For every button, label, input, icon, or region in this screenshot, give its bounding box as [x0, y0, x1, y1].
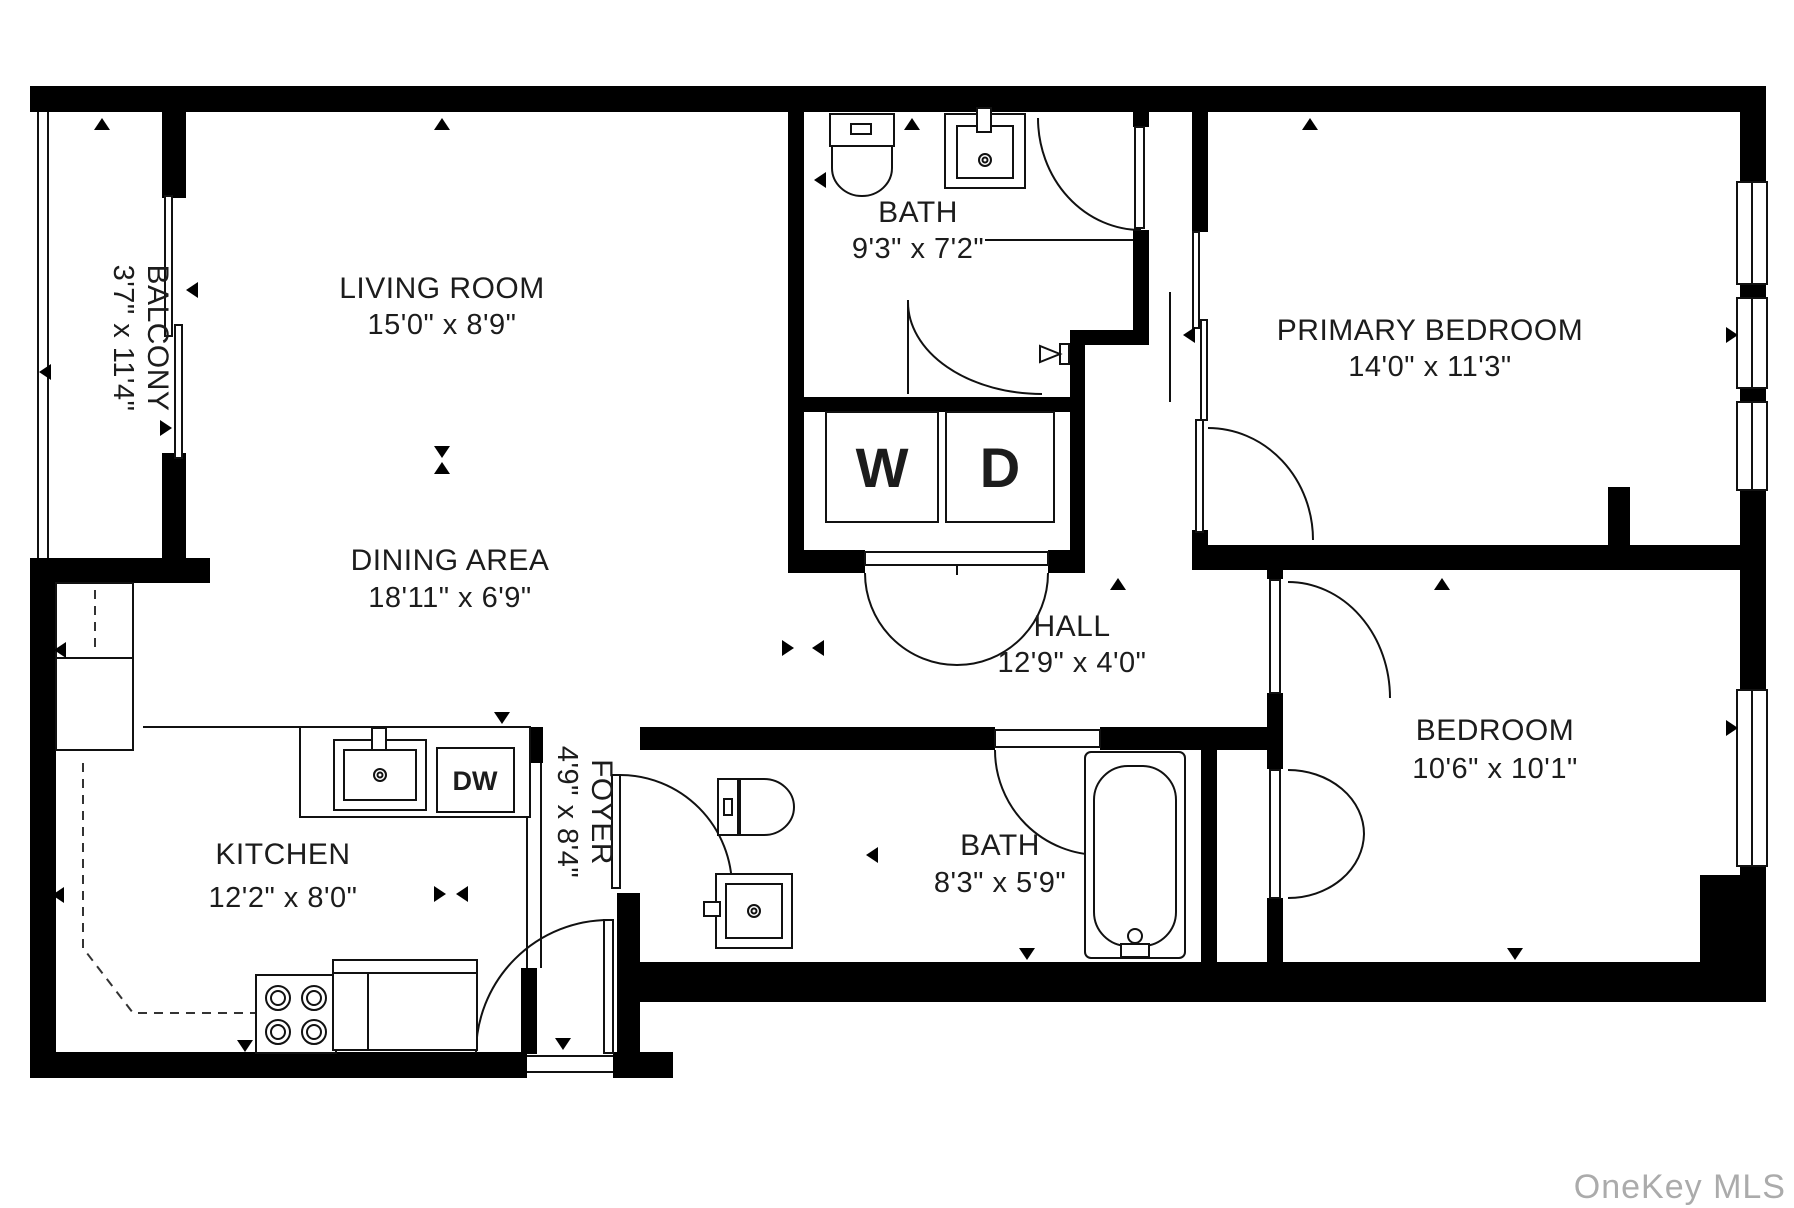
- room-label-bath1: BATH 9'3" x 7'2": [852, 196, 984, 265]
- room-name: FOYER: [585, 759, 618, 865]
- bedroom-window: [1737, 690, 1767, 866]
- room-label-balcony: BALCONY 3'7" x 11'4": [107, 265, 174, 412]
- stove-icon: [256, 975, 336, 1053]
- room-name: HALL: [1033, 610, 1110, 643]
- room-label-kitchen: KITCHEN 12'2" x 8'0": [209, 838, 358, 914]
- dryer-label: D: [980, 436, 1020, 499]
- room-name: LIVING ROOM: [339, 272, 545, 305]
- bedroom-door: [1270, 580, 1390, 698]
- room-dims: 8'3" x 5'9": [934, 867, 1066, 899]
- bedroom-closet-doors: [1270, 770, 1364, 898]
- floor-plan-drawing: BALCONY 3'7" x 11'4" LIVING ROOM 15'0" x…: [0, 0, 1794, 1208]
- bath1-door: [1038, 118, 1144, 230]
- primary-bedroom-door: [1196, 420, 1313, 540]
- entry-door: [476, 920, 613, 1072]
- room-dims: 9'3" x 7'2": [852, 233, 984, 265]
- room-dims: 12'2" x 8'0": [209, 882, 358, 914]
- sink-icon: [704, 874, 792, 948]
- room-dims: 3'7" x 11'4": [107, 265, 139, 412]
- primary-bedroom-window: [1737, 298, 1767, 388]
- foyer-door: [612, 775, 732, 888]
- fixtures: [256, 108, 1185, 1053]
- kitchen-sink-icon: [334, 728, 426, 810]
- room-name: BATH: [960, 829, 1040, 862]
- floor-plan-page: BALCONY 3'7" x 11'4" LIVING ROOM 15'0" x…: [0, 0, 1794, 1208]
- primary-bedroom-window: [1737, 402, 1767, 490]
- dishwasher-label: DW: [453, 766, 498, 796]
- room-dims: 4'9" x 8'4": [551, 746, 583, 878]
- primary-bedroom-window: [1737, 182, 1767, 284]
- room-dims: 15'0" x 8'9": [368, 309, 517, 341]
- room-dims: 12'9" x 4'0": [998, 647, 1147, 679]
- room-name: BATH: [878, 196, 958, 229]
- sink-icon: [945, 108, 1025, 188]
- watermark: OneKey MLS: [1574, 1168, 1786, 1206]
- room-label-foyer: FOYER 4'9" x 8'4": [551, 746, 618, 878]
- room-name: DINING AREA: [351, 544, 550, 577]
- toilet-icon: [718, 779, 794, 835]
- room-label-primary: PRIMARY BEDROOM 14'0" x 11'3": [1277, 314, 1583, 383]
- washer-label: W: [856, 436, 909, 499]
- bathtub-icon: [1085, 752, 1185, 958]
- room-label-hall: HALL 12'9" x 4'0": [998, 610, 1147, 679]
- room-label-bedroom: BEDROOM 10'6" x 10'1": [1412, 714, 1578, 785]
- room-name: PRIMARY BEDROOM: [1277, 314, 1583, 347]
- room-dims: 10'6" x 10'1": [1412, 753, 1578, 785]
- toilet-icon: [830, 114, 894, 196]
- room-label-living: LIVING ROOM 15'0" x 8'9": [339, 272, 545, 341]
- balcony-railing: [38, 112, 48, 558]
- room-dims: 14'0" x 11'3": [1348, 351, 1511, 383]
- kitchen-base-counter: [333, 960, 477, 1050]
- room-name: BEDROOM: [1416, 714, 1575, 747]
- room-label-dining: DINING AREA 18'11" x 6'9": [351, 544, 550, 614]
- room-name: KITCHEN: [215, 838, 350, 871]
- room-name: BALCONY: [141, 265, 174, 412]
- room-dims: 18'11" x 6'9": [368, 582, 531, 614]
- primary-sliding-door: [1170, 232, 1207, 420]
